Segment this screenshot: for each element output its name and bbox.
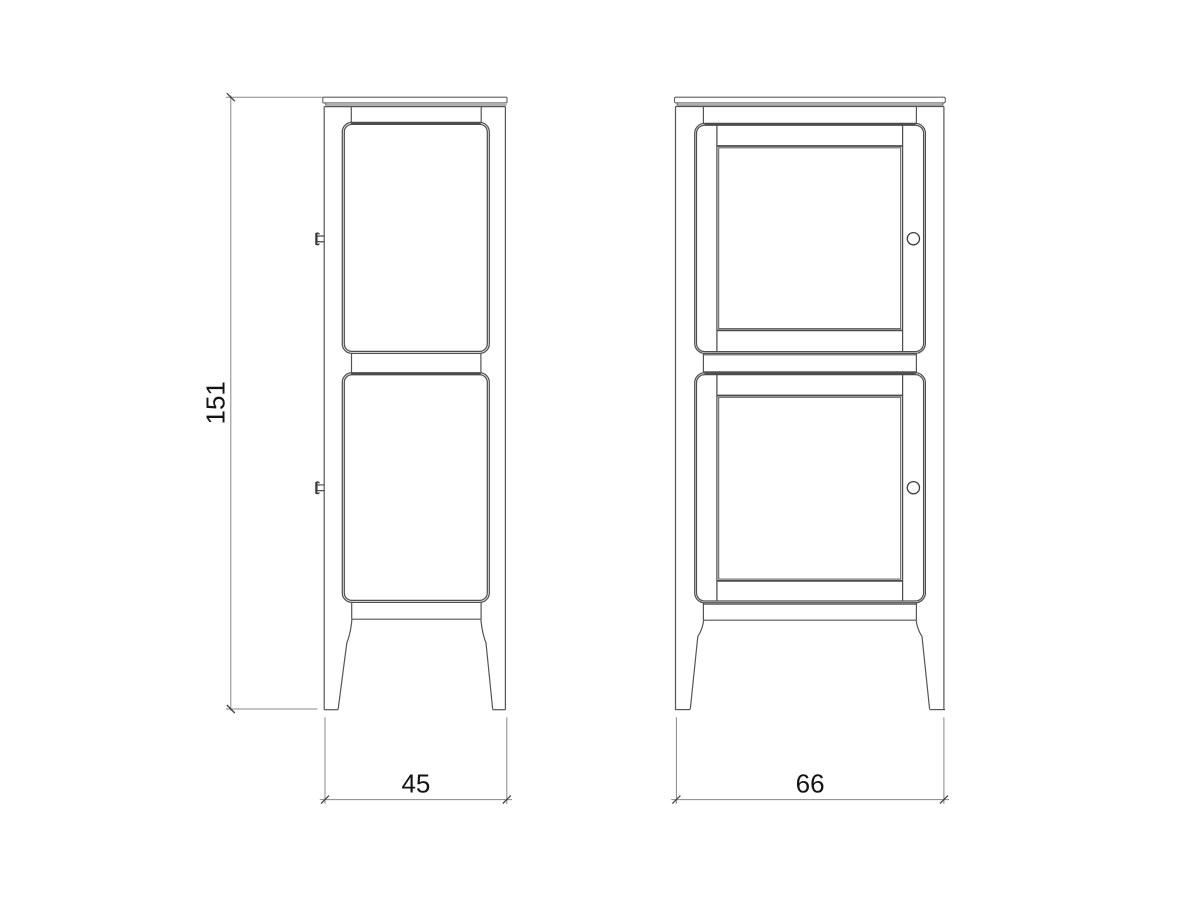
svg-text:151: 151 <box>201 381 231 424</box>
svg-text:66: 66 <box>796 769 825 799</box>
svg-text:45: 45 <box>401 769 430 799</box>
